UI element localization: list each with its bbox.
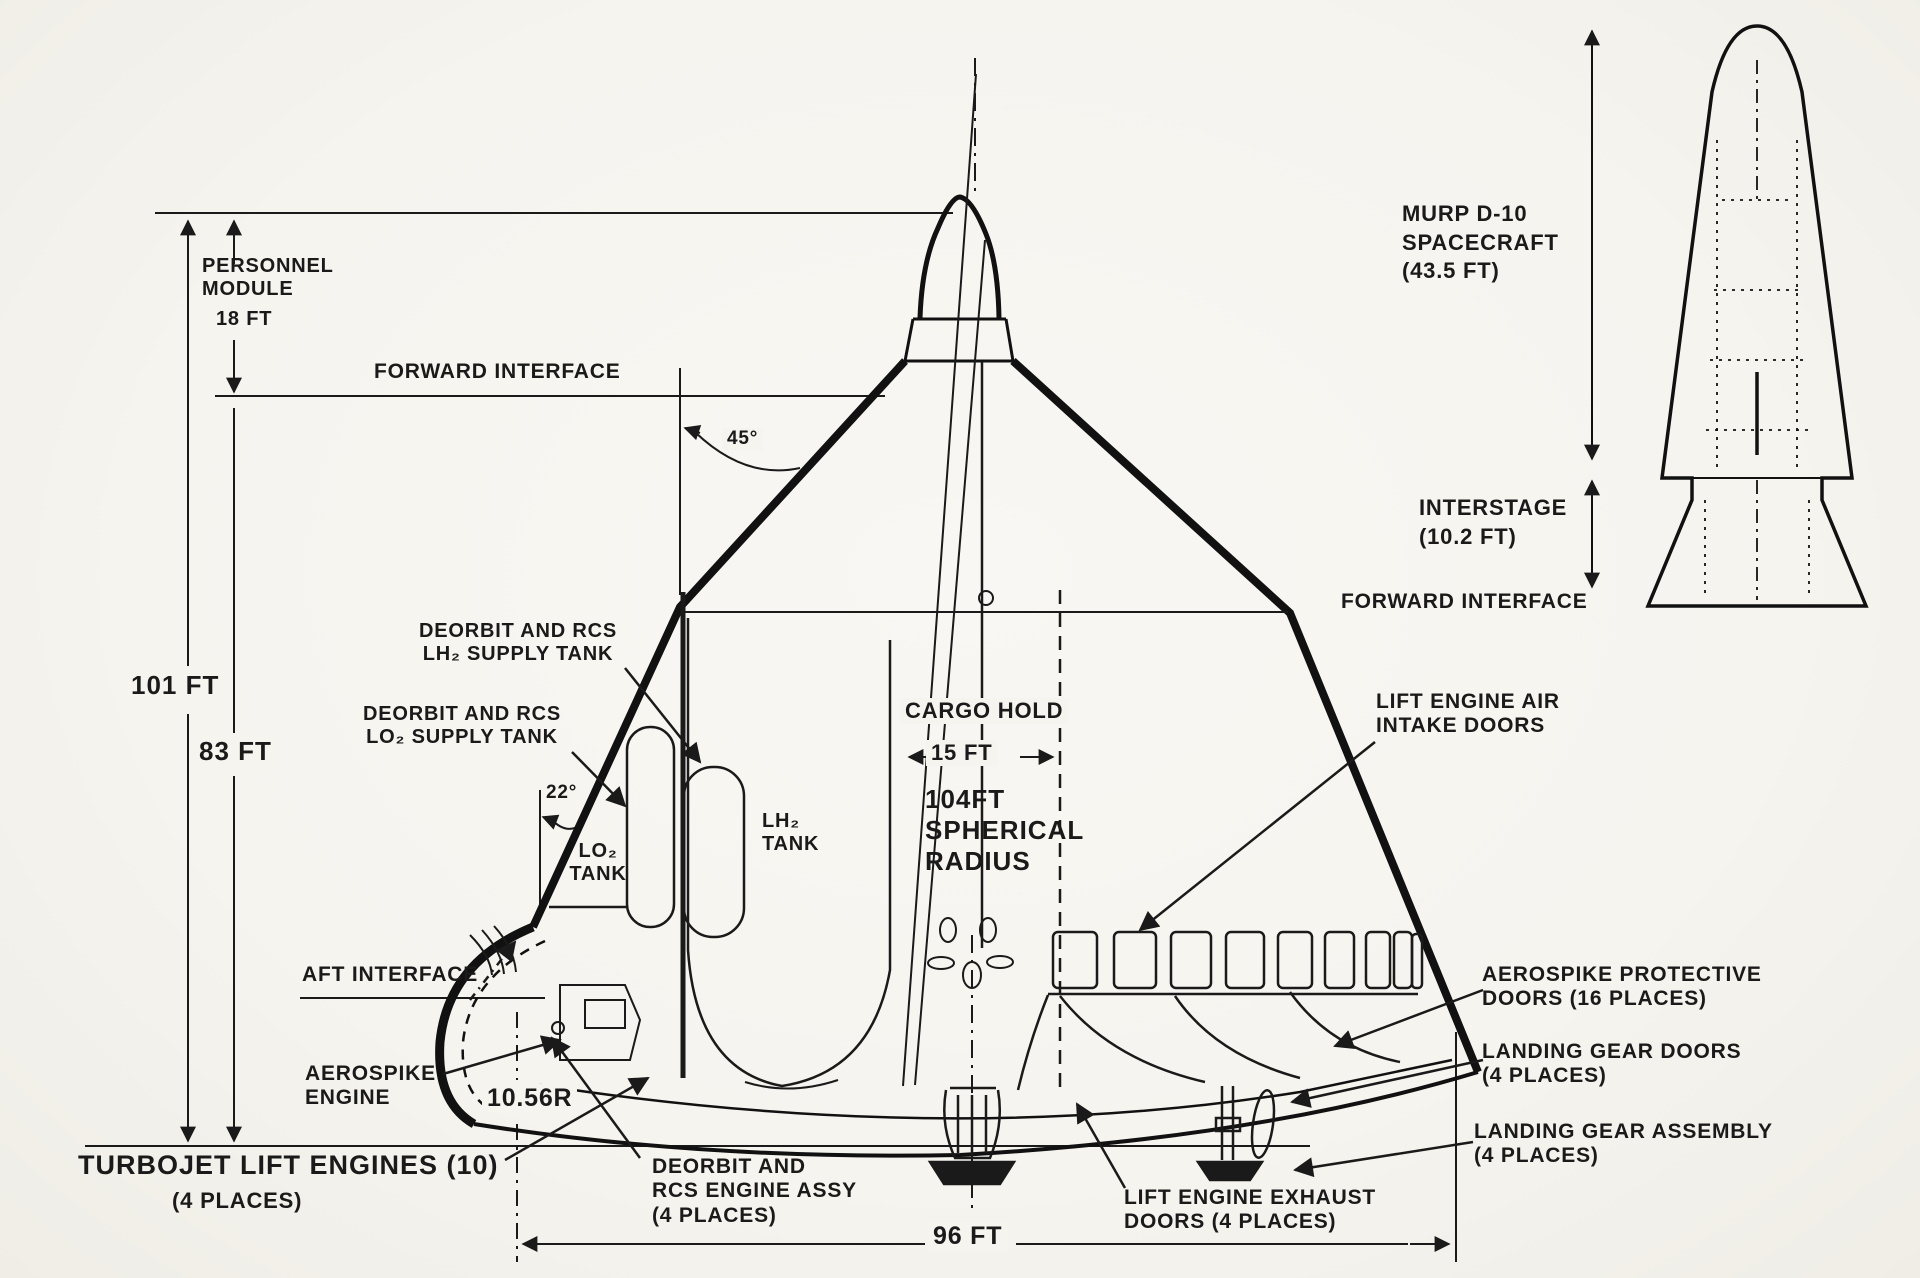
- label-cargo-width: 15 FT: [926, 740, 997, 766]
- intake-doors-row: [1053, 932, 1422, 988]
- label-turbojet-places: (4 PLACES): [172, 1188, 302, 1214]
- landing-gear-center: [930, 1088, 1014, 1184]
- label-height-101: 101 FT: [126, 670, 224, 700]
- main-vehicle-outline: [440, 197, 1478, 1156]
- label-interstage: INTERSTAGE (10.2 FT): [1419, 494, 1567, 551]
- label-cargo-hold: CARGO HOLD: [900, 698, 1068, 724]
- label-spherical-radius: 104FT SPHERICAL RADIUS: [925, 784, 1084, 878]
- label-landing-gear-doors: LANDING GEAR DOORS (4 PLACES): [1482, 1040, 1741, 1089]
- label-angle-45: 45°: [722, 428, 763, 450]
- label-lh2-tank: LH₂ TANK: [762, 810, 819, 856]
- label-lift-engine-exhaust-doors: LIFT ENGINE EXHAUST DOORS (4 PLACES): [1124, 1186, 1376, 1235]
- label-turbojet-lift-engines: TURBOJET LIFT ENGINES (10): [78, 1150, 499, 1181]
- label-height-83: 83 FT: [194, 736, 277, 766]
- label-deorbit-rcs-engine-assy: DEORBIT AND RCS ENGINE ASSY (4 PLACES): [652, 1155, 857, 1228]
- label-length-96: 96 FT: [928, 1222, 1007, 1251]
- diagram-page: PERSONNEL MODULE 18 FT FORWARD INTERFACE…: [0, 0, 1920, 1278]
- label-deorbit-lh2-supply-tank: DEORBIT AND RCS LH₂ SUPPLY TANK: [408, 620, 628, 666]
- small-spacecraft-sketch: [1592, 26, 1866, 606]
- label-personnel-module-dim: 18 FT: [216, 308, 272, 331]
- label-aerospike-engine: AEROSPIKE ENGINE: [305, 1062, 436, 1111]
- dimension-lines: [85, 213, 1456, 1262]
- label-lift-engine-intake-doors: LIFT ENGINE AIR INTAKE DOORS: [1376, 690, 1560, 739]
- label-aft-interface: AFT INTERFACE: [302, 963, 478, 987]
- rcs-engine-cluster: [928, 918, 1013, 988]
- label-forward-interface-right: FORWARD INTERFACE: [1341, 590, 1588, 614]
- nose-cap: [905, 197, 1013, 361]
- label-murp-spacecraft: MURP D-10 SPACECRAFT (43.5 FT): [1402, 200, 1559, 286]
- label-deorbit-lo2-supply-tank: DEORBIT AND RCS LO₂ SUPPLY TANK: [352, 703, 572, 749]
- label-personnel-module: PERSONNEL MODULE: [202, 255, 334, 301]
- label-landing-gear-assembly: LANDING GEAR ASSEMBLY (4 PLACES): [1474, 1120, 1773, 1169]
- label-angle-22: 22°: [546, 782, 577, 804]
- label-aerospike-protective-doors: AEROSPIKE PROTECTIVE DOORS (16 PLACES): [1482, 963, 1762, 1012]
- label-forward-interface: FORWARD INTERFACE: [374, 360, 621, 384]
- label-radius-1056: 10.56R: [482, 1084, 577, 1113]
- protective-doors-panels: [1018, 992, 1418, 1090]
- label-lo2-tank: LO₂ TANK: [566, 840, 630, 886]
